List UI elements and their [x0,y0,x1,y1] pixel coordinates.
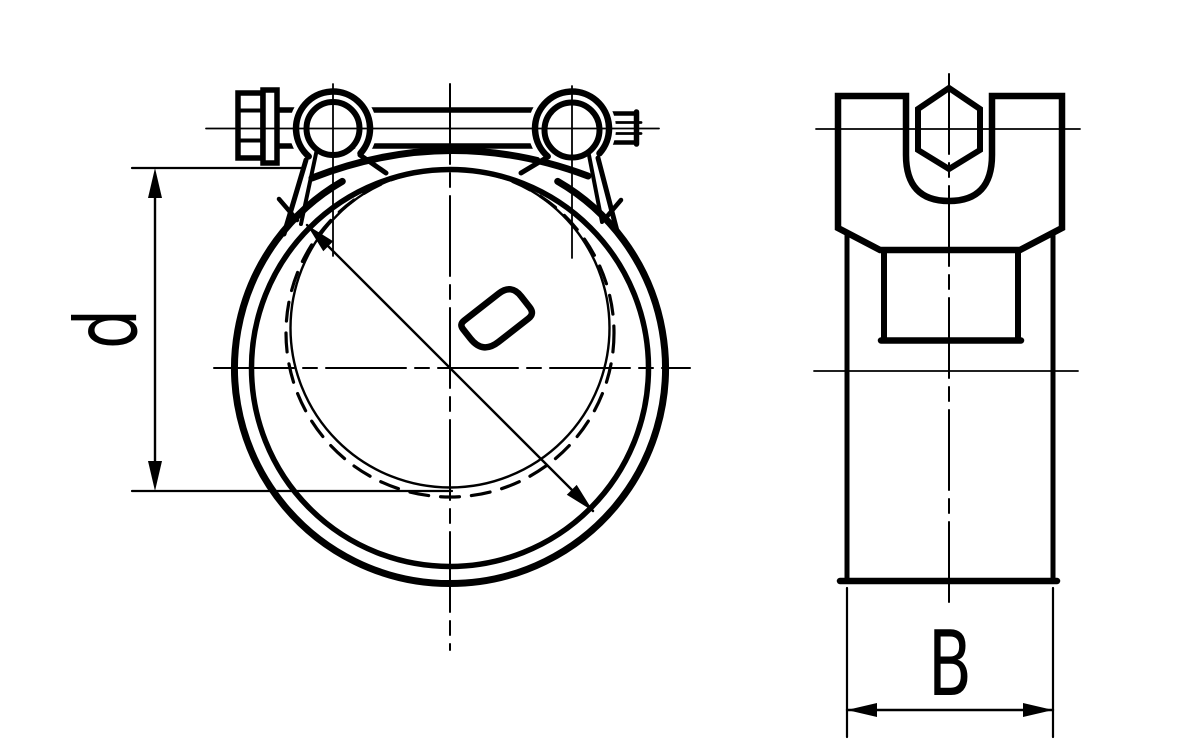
washer [263,90,277,163]
front-view: d [57,84,690,650]
side-view: B [814,74,1080,737]
d-arrowhead-bottom [148,461,162,491]
dimension-B: B [847,588,1053,737]
B-dimension-label: B [928,612,972,717]
band-slot-stamp [459,284,534,355]
d-dimension-label: d [57,309,157,349]
clamp-drawing-svg: d B [0,0,1200,750]
band-slot-recess [881,253,1021,341]
bolt-head-assembly [238,90,277,163]
B-arrowhead-right [1023,703,1053,717]
technical-drawing-canvas: d B [0,0,1200,750]
hex-bolt-head-side [238,93,263,158]
d-arrowhead-top [148,168,162,198]
B-arrowhead-left [847,703,877,717]
